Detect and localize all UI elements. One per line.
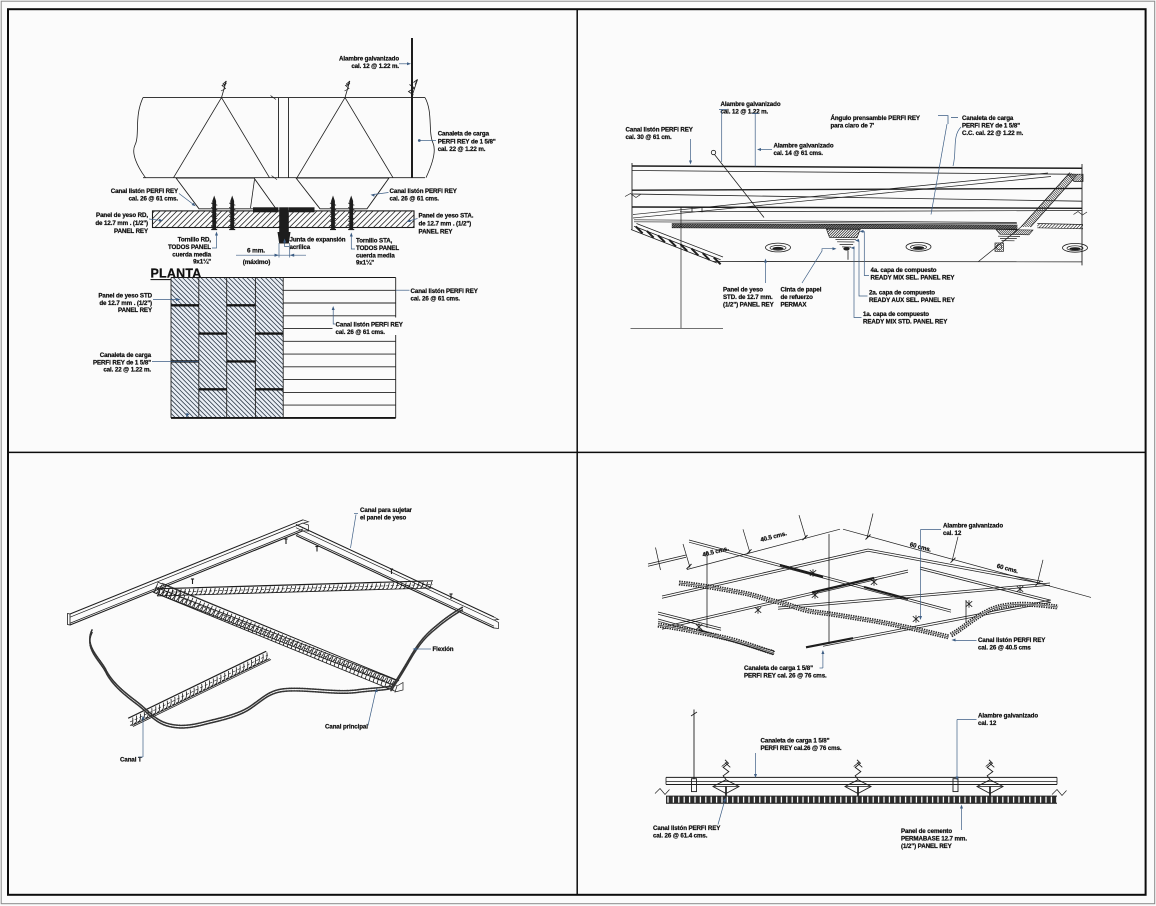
svg-text:cal. 26 @ 61 cms.: cal. 26 @ 61 cms. [411,295,461,302]
svg-text:PANEL REY: PANEL REY [118,307,153,314]
svg-text:TODOS PANEL: TODOS PANEL [356,245,399,252]
svg-text:cal. 12 @ 1.22 m.: cal. 12 @ 1.22 m. [351,63,399,70]
svg-text:PERFI REY cal.26 @ 76 cms.: PERFI REY cal.26 @ 76 cms. [761,745,842,752]
svg-text:(máximo): (máximo) [243,259,271,266]
svg-text:Canal listón PERFI REY: Canal listón PERFI REY [626,127,694,134]
svg-text:2a. capa de compuesto: 2a. capa de compuesto [869,290,935,297]
svg-text:Panel de yeso RD,: Panel de yeso RD, [96,212,148,219]
svg-text:cal. 12: cal. 12 [943,530,962,537]
svg-text:Ángulo prensamble PERFI REY: Ángulo prensamble PERFI REY [831,115,921,122]
svg-text:9x1¼": 9x1¼" [193,259,211,266]
svg-text:el panel de yeso: el panel de yeso [360,514,407,521]
svg-text:Alambre galvanizado: Alambre galvanizado [978,713,1038,720]
svg-text:Cinta de papel: Cinta de papel [781,287,822,294]
svg-text:cal. 26 @ 61.4 cms.: cal. 26 @ 61.4 cms. [653,832,708,839]
svg-text:Canal principal: Canal principal [325,724,368,731]
svg-text:READY MIX STD. PANEL REY: READY MIX STD. PANEL REY [863,318,948,325]
svg-text:PANEL REY: PANEL REY [419,229,454,236]
svg-text:PERFI REY de 1 5/8": PERFI REY de 1 5/8" [93,359,151,366]
svg-text:cal. 22 @ 1.22 m.: cal. 22 @ 1.22 m. [103,367,151,374]
svg-text:Panel de cemento: Panel de cemento [901,828,952,835]
svg-text:C.C. cal. 22 @ 1.22 m.: C.C. cal. 22 @ 1.22 m. [962,130,1024,137]
svg-text:Canal listón PERFI REY: Canal listón PERFI REY [390,188,458,195]
svg-text:Canal listón PERFI REY: Canal listón PERFI REY [411,288,479,295]
svg-text:READY AUX SEL. PANEL REY: READY AUX SEL. PANEL REY [869,297,956,304]
svg-text:(1/2") PANEL REY: (1/2") PANEL REY [723,301,775,308]
svg-text:PERFI REY de 1 5/8": PERFI REY de 1 5/8" [962,122,1020,129]
svg-text:Tornillo RD,: Tornillo RD, [178,237,212,244]
svg-text:Canal listón PERFI REY: Canal listón PERFI REY [111,188,179,195]
svg-text:1a. capa de compuesto: 1a. capa de compuesto [863,311,929,318]
svg-text:de refuerzo: de refuerzo [781,294,814,301]
svg-text:Canal listón PERFI REY: Canal listón PERFI REY [653,825,721,832]
svg-text:cal. 12 @ 1.22 m.: cal. 12 @ 1.22 m. [721,108,769,115]
svg-text:Canaleta de carga 1 5/8": Canaleta de carga 1 5/8" [744,665,813,672]
svg-text:Canaleta de carga: Canaleta de carga [100,352,152,359]
svg-text:6 mm.: 6 mm. [247,248,265,255]
svg-text:de 12.7 mm . (1/2"): de 12.7 mm . (1/2") [95,220,148,227]
svg-text:Canaleta de carga 1 5/8": Canaleta de carga 1 5/8" [761,738,830,745]
svg-text:Panel de yeso STA.: Panel de yeso STA. [419,213,474,220]
svg-text:Tornillo STA,: Tornillo STA, [356,238,393,245]
svg-text:PERMABASE 12.7 mm.: PERMABASE 12.7 mm. [901,835,967,842]
svg-text:Flexión: Flexión [433,646,454,653]
svg-text:cal. 14 @ 61 cms.: cal. 14 @ 61 cms. [774,150,824,157]
svg-text:Canal para sujetar: Canal para sujetar [360,507,413,514]
svg-text:Canaleta de carga: Canaleta de carga [962,115,1014,122]
svg-text:Junta de expansión: Junta de expansión [290,237,346,244]
svg-text:Panel de yeso: Panel de yeso [723,287,763,294]
svg-text:acrílica: acrílica [290,244,311,251]
svg-text:Panel de yeso STD: Panel de yeso STD [98,293,152,300]
svg-text:PERFI REY cal. 26 @ 76 cms.: PERFI REY cal. 26 @ 76 cms. [744,672,827,679]
svg-text:Canaleta de carga: Canaleta de carga [438,131,490,138]
svg-text:cal. 26 @ 61 cms.: cal. 26 @ 61 cms. [129,195,179,202]
svg-text:cuerda media: cuerda media [356,252,395,259]
svg-text:cal. 26 @ 40.5 cms: cal. 26 @ 40.5 cms [978,644,1031,651]
svg-text:Alambre galvanizado: Alambre galvanizado [943,523,1003,530]
svg-text:TODOS PANEL: TODOS PANEL [168,244,211,251]
svg-text:para claro de 7': para claro de 7' [831,122,875,129]
svg-text:cal. 12: cal. 12 [978,720,997,727]
svg-text:(1/2") PANEL REY: (1/2") PANEL REY [901,843,953,850]
svg-text:de 12.7 mm . (1/2"): de 12.7 mm . (1/2") [419,221,472,228]
svg-text:cal. 22 @ 1.22 m.: cal. 22 @ 1.22 m. [438,146,486,153]
svg-text:Alambre galvanizado: Alambre galvanizado [721,101,781,108]
svg-text:cal. 26 @ 61 cms.: cal. 26 @ 61 cms. [336,329,386,336]
svg-text:4a. capa de compuesto: 4a. capa de compuesto [871,267,937,274]
svg-text:PERMAX: PERMAX [781,301,808,308]
svg-text:9x1¼": 9x1¼" [356,260,374,267]
svg-text:Canal T: Canal T [120,757,142,764]
svg-text:cal. 30 @ 61 cm.: cal. 30 @ 61 cm. [626,134,672,141]
svg-text:cal. 26 @ 61 cms.: cal. 26 @ 61 cms. [390,195,440,202]
svg-text:STD. de 12.7 mm.: STD. de 12.7 mm. [723,294,773,301]
svg-text:READY MIX SEL. PANEL REY: READY MIX SEL. PANEL REY [871,274,956,281]
svg-text:Canal listón PERFI REY: Canal listón PERFI REY [978,637,1046,644]
svg-text:de 12.7 mm . (1/2"): de 12.7 mm . (1/2") [99,300,152,307]
svg-text:Canal listón PERFI REY: Canal listón PERFI REY [336,322,404,329]
svg-text:Alambre galvanizado: Alambre galvanizado [774,143,834,150]
svg-text:PERFI REY de 1 5/8": PERFI REY de 1 5/8" [438,138,496,145]
svg-text:Alambre galvanizado: Alambre galvanizado [339,56,399,63]
svg-text:cuerda media: cuerda media [172,251,211,258]
svg-text:PANEL REY: PANEL REY [114,228,149,235]
